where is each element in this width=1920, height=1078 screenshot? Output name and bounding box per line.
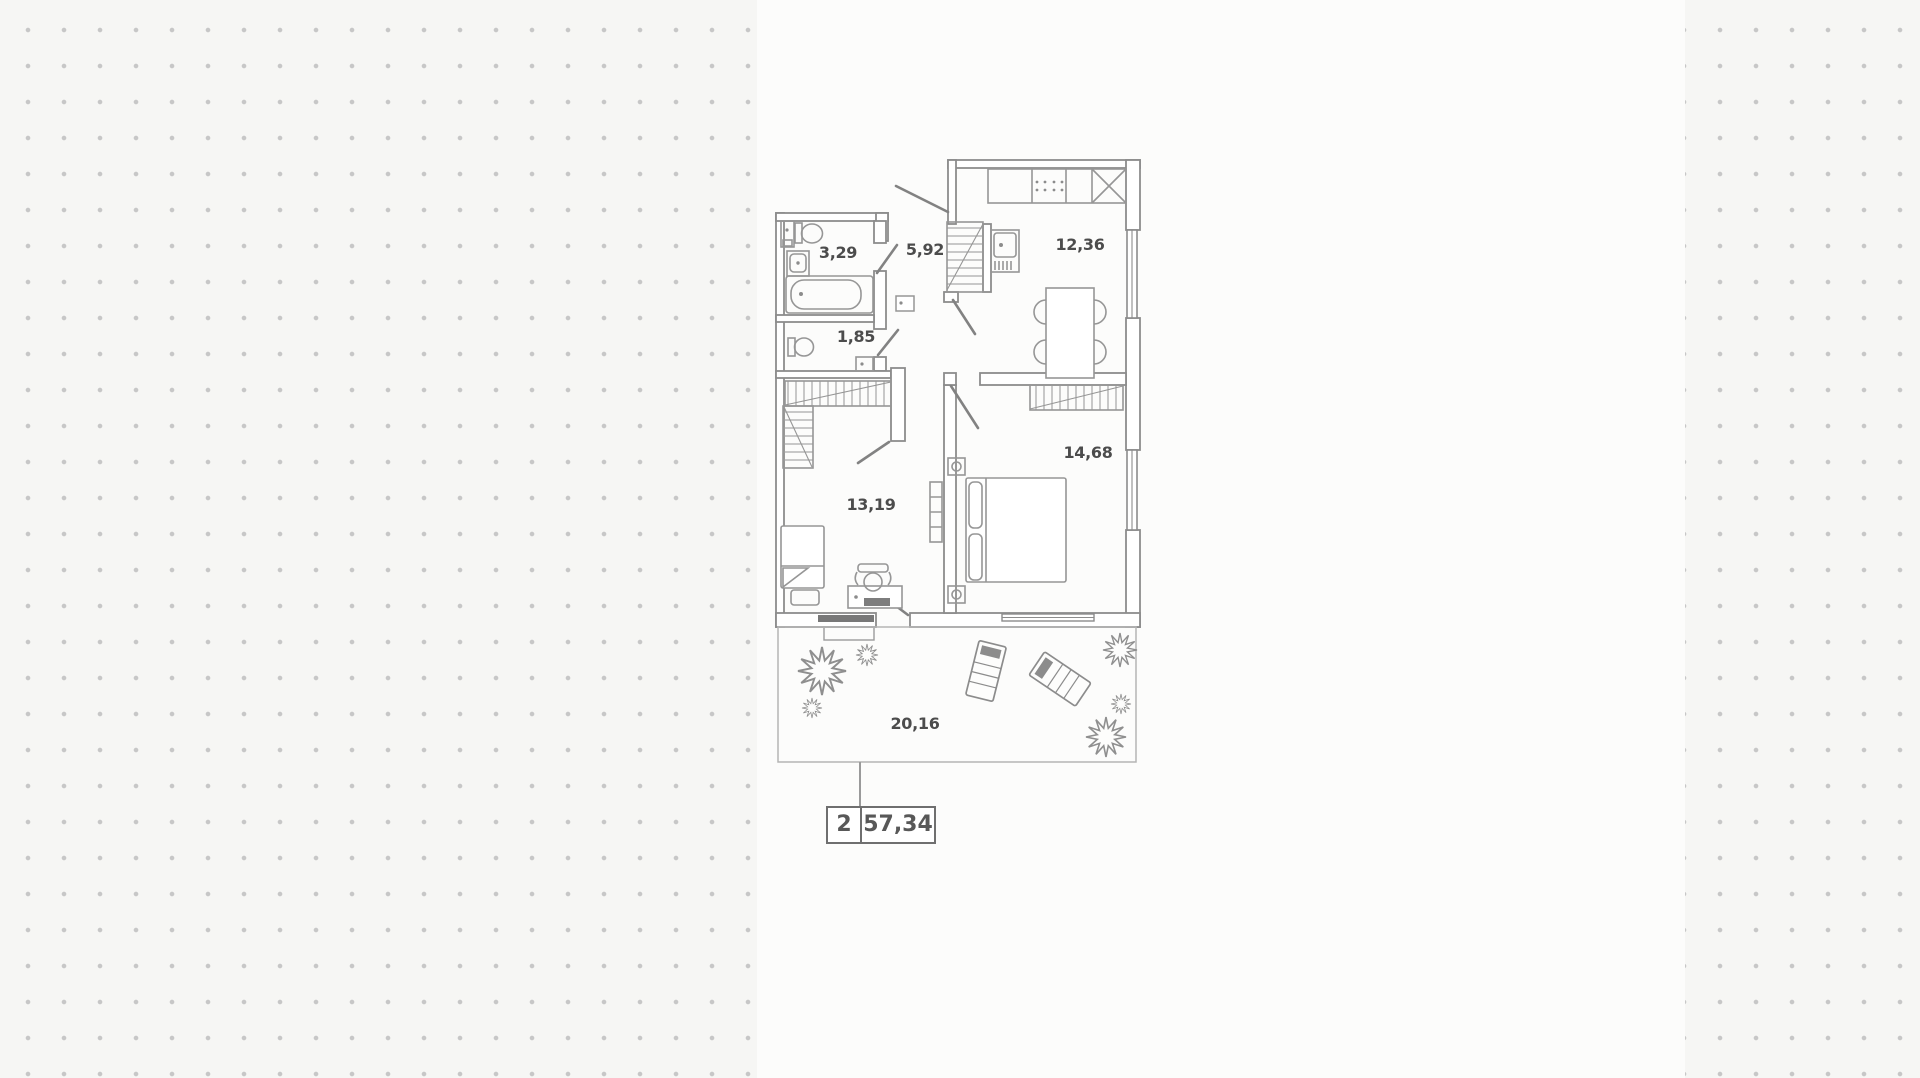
bedroom-furniture [948, 385, 1123, 603]
page-background: { "page": { "background_color": "#f6f6f4… [0, 0, 1920, 1078]
plant-icon [1086, 717, 1126, 757]
bathtub-icon [786, 276, 873, 313]
wc-toilet-icon [788, 338, 814, 356]
living-door-swing [858, 442, 889, 463]
chair-icon [1034, 300, 1046, 324]
wc-door-swing [878, 330, 898, 355]
dining-table-icon [1046, 288, 1094, 378]
area-label-bathroom: 3,29 [819, 245, 857, 261]
fridge-icon [1092, 169, 1126, 203]
lounger-icon [1029, 652, 1091, 707]
lounger-icon [966, 640, 1007, 701]
living-wardrobe [783, 381, 891, 468]
hallway-furniture [896, 222, 983, 311]
single-bed-icon [781, 526, 824, 605]
kitchen-sink-icon [991, 230, 1019, 272]
chair-icon [1034, 340, 1046, 364]
kitchen-furniture [988, 169, 1126, 378]
desk-icon [848, 586, 902, 608]
area-label-hallway: 5,92 [906, 242, 944, 258]
bathroom-fixtures [781, 221, 873, 313]
window-bedroom [1127, 450, 1137, 530]
shelf-icon [930, 482, 942, 542]
area-label-living-room: 13,19 [846, 497, 895, 513]
stove-icon [1036, 181, 1064, 192]
plant-icon [1103, 633, 1137, 667]
plan-summary-box: 2 57,34 [826, 806, 936, 844]
wc-sink-icon [856, 357, 873, 371]
chair-icon [1094, 300, 1106, 324]
plant-icon [802, 698, 822, 718]
kitchen-door-swing [953, 300, 975, 334]
area-label-bedroom: 14,68 [1063, 445, 1112, 461]
window-kitchen [1127, 230, 1137, 318]
hall-wardrobe [947, 222, 983, 292]
entrance-door-swing [896, 186, 948, 212]
kitchen-counter [988, 169, 1126, 203]
floor-plan-svg [0, 0, 1920, 1078]
double-bed-icon [966, 478, 1066, 582]
total-area: 57,34 [862, 808, 934, 842]
area-label-wc: 1,85 [837, 329, 875, 345]
window-bedroom-south [1002, 614, 1094, 621]
chair-icon [1094, 340, 1106, 364]
hall-cabinet-icon [896, 296, 914, 311]
toilet-icon [795, 223, 823, 243]
bathroom-sink-icon [787, 251, 809, 276]
bedroom-wardrobe [1030, 385, 1123, 410]
plant-icon [1111, 694, 1131, 714]
plant-icon [856, 644, 878, 666]
area-label-kitchen: 12,36 [1055, 237, 1104, 253]
rooms-count: 2 [828, 808, 862, 842]
plant-icon [798, 647, 846, 695]
terrace [778, 627, 1137, 762]
bathroom-door-swing [877, 245, 897, 273]
area-label-terrace: 20,16 [890, 716, 939, 732]
